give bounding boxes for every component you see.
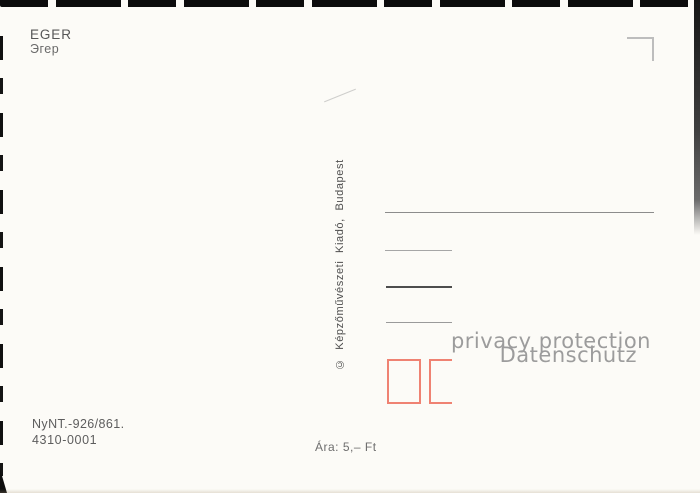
address-line-4: [386, 322, 452, 323]
torn-edge-top: [0, 0, 700, 7]
postal-code-box-1: [387, 359, 421, 404]
publisher-imprint: © Képzőművészeti Kiadó, Budapest: [334, 124, 346, 370]
card-title-cyrillic: Эгер: [30, 42, 59, 56]
card-title: EGER: [30, 27, 72, 42]
torn-edge-left: [0, 36, 3, 476]
postal-code-box-2: [429, 359, 452, 404]
stamp-corner-icon: [627, 37, 654, 61]
scratch-mark: [324, 89, 356, 103]
bottom-edge-shadow: [0, 489, 700, 493]
postcard-back: EGER Эгер © Képzőművészeti Kiadó, Budape…: [0, 0, 700, 493]
watermark-line-2: Datenschutz: [500, 343, 637, 367]
price-label: Ára: 5,– Ft: [315, 440, 377, 454]
torn-edge-right: [694, 0, 700, 235]
address-line-1: [385, 212, 654, 213]
address-line-2: [385, 250, 452, 251]
print-number: NyNT.-926/861.: [32, 417, 124, 431]
order-number: 4310-0001: [32, 433, 97, 447]
address-line-3: [386, 286, 452, 288]
